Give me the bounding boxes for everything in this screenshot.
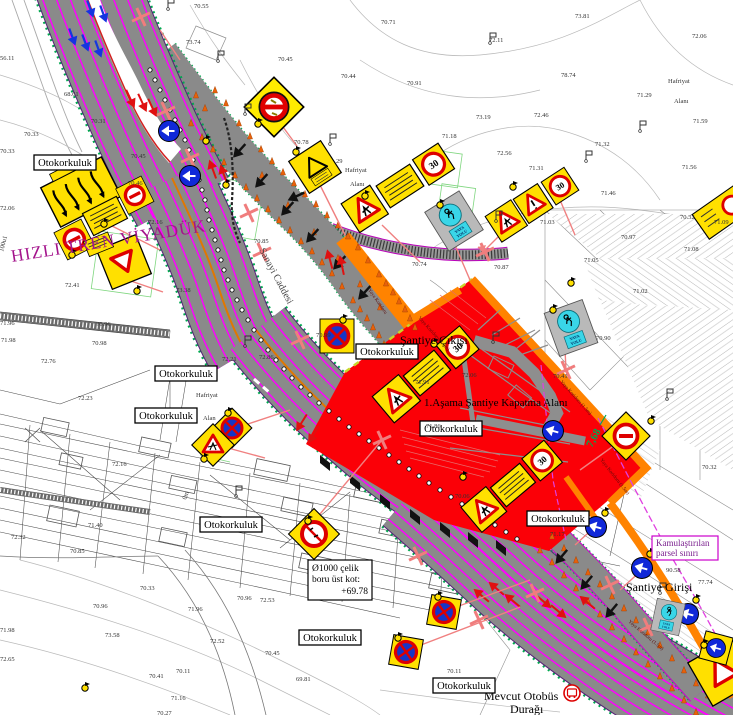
svg-text:+69.78: +69.78	[341, 587, 368, 597]
svg-text:71.86: 71.86	[426, 423, 441, 430]
svg-text:70.87: 70.87	[494, 264, 509, 271]
svg-text:70.32: 70.32	[680, 214, 695, 221]
svg-text:73.81: 73.81	[575, 13, 590, 20]
svg-text:71.17: 71.17	[550, 531, 565, 538]
svg-text:70.33: 70.33	[0, 148, 15, 155]
svg-text:72.16: 72.16	[148, 219, 163, 226]
svg-text:70.45: 70.45	[278, 56, 293, 63]
svg-text:70.90: 70.90	[596, 335, 611, 342]
svg-text:68.61: 68.61	[64, 91, 79, 98]
svg-text:Durağı: Durağı	[510, 702, 544, 715]
svg-text:73.38: 73.38	[176, 287, 191, 294]
svg-text:72.56: 72.56	[497, 150, 512, 157]
svg-text:parsel sınırı: parsel sınırı	[656, 548, 699, 558]
svg-text:Hafriyat: Hafriyat	[345, 167, 367, 174]
svg-text:71.91: 71.91	[415, 379, 430, 386]
svg-text:Hafriyat: Hafriyat	[196, 392, 218, 399]
svg-text:72.06: 72.06	[0, 205, 15, 212]
svg-text:boru üst kot:: boru üst kot:	[312, 575, 360, 585]
svg-text:72.32: 72.32	[11, 534, 26, 541]
svg-text:70.33: 70.33	[140, 585, 155, 592]
svg-text:71.02: 71.02	[633, 288, 648, 295]
svg-text:72.16: 72.16	[112, 461, 127, 468]
svg-text:70.11: 70.11	[447, 668, 461, 675]
svg-text:71.98: 71.98	[0, 627, 15, 634]
svg-text:70.99: 70.99	[316, 332, 331, 339]
svg-text:71.98: 71.98	[1, 337, 16, 344]
svg-text:71.56: 71.56	[682, 164, 697, 171]
svg-text:72.11: 72.11	[489, 37, 503, 44]
svg-text:70.41: 70.41	[553, 373, 568, 380]
svg-text:70.32: 70.32	[702, 464, 717, 471]
svg-text:Hafriyat: Hafriyat	[668, 78, 690, 85]
svg-text:Mevcut Otobüs: Mevcut Otobüs	[484, 689, 559, 703]
svg-text:71.31: 71.31	[529, 165, 544, 172]
svg-text:71.16: 71.16	[171, 695, 186, 702]
svg-text:71.09: 71.09	[714, 219, 729, 226]
svg-text:78.74: 78.74	[561, 72, 576, 79]
svg-text:71.96: 71.96	[188, 606, 203, 613]
svg-text:73.74: 73.74	[186, 39, 201, 46]
svg-text:72.06: 72.06	[462, 372, 477, 379]
svg-text:70.11: 70.11	[176, 668, 190, 675]
svg-text:72.06: 72.06	[692, 33, 707, 40]
svg-text:77.74: 77.74	[698, 579, 713, 586]
svg-text:70.71: 70.71	[381, 19, 396, 26]
svg-text:Kamulaştırılan: Kamulaştırılan	[656, 538, 710, 548]
svg-text:Alan: Alan	[203, 415, 216, 422]
svg-text:1.Aşama Şantiye Kapatma Alanı: 1.Aşama Şantiye Kapatma Alanı	[424, 397, 568, 409]
svg-text:70.41: 70.41	[149, 673, 164, 680]
svg-text:70.06: 70.06	[455, 493, 470, 500]
svg-text:Şantiye Girişi: Şantiye Girişi	[626, 580, 693, 594]
svg-text:72.21: 72.21	[222, 356, 237, 363]
svg-text:71.03: 71.03	[540, 219, 555, 226]
svg-text:71.08: 71.08	[684, 246, 699, 253]
svg-text:71.05: 71.05	[584, 257, 599, 264]
svg-text:90.58: 90.58	[666, 567, 681, 574]
svg-text:70.91: 70.91	[407, 80, 422, 87]
svg-text:70.96: 70.96	[96, 321, 111, 328]
svg-text:72.86: 72.86	[259, 354, 274, 361]
svg-text:73.19: 73.19	[476, 114, 491, 121]
svg-text:70.31: 70.31	[91, 118, 106, 125]
svg-text:70.97: 70.97	[621, 234, 636, 241]
svg-text:71.18: 71.18	[442, 133, 457, 140]
svg-text:70.74: 70.74	[412, 261, 427, 268]
svg-text:70.44: 70.44	[341, 73, 356, 80]
svg-text:Ø1000 çelik: Ø1000 çelik	[312, 564, 359, 574]
svg-text:70.96: 70.96	[237, 595, 252, 602]
svg-text:Alanı: Alanı	[674, 98, 689, 105]
svg-text:70.46: 70.46	[128, 180, 143, 187]
svg-text:72.23: 72.23	[78, 395, 93, 402]
svg-text:71.40: 71.40	[88, 522, 103, 529]
svg-text:29: 29	[336, 158, 343, 165]
svg-text:70.33: 70.33	[24, 131, 39, 138]
svg-text:70.78: 70.78	[294, 139, 309, 146]
svg-text:69.81: 69.81	[296, 676, 311, 683]
svg-text:70.45: 70.45	[131, 153, 146, 160]
svg-text:72.65: 72.65	[0, 656, 15, 663]
svg-text:56.11: 56.11	[0, 55, 14, 62]
svg-text:72.52: 72.52	[210, 638, 225, 645]
svg-text:70.45: 70.45	[265, 650, 280, 657]
svg-text:70.96: 70.96	[93, 603, 108, 610]
svg-text:70.85: 70.85	[70, 548, 85, 555]
svg-text:71.59: 71.59	[693, 118, 708, 125]
svg-text:72.76: 72.76	[41, 358, 56, 365]
svg-text:71.29: 71.29	[637, 92, 652, 99]
svg-text:70.98: 70.98	[92, 340, 107, 347]
svg-text:72.53: 72.53	[260, 597, 275, 604]
svg-text:70.27: 70.27	[157, 710, 172, 715]
svg-text:71.96: 71.96	[0, 320, 15, 327]
svg-text:71.46: 71.46	[601, 190, 616, 197]
svg-text:72.46: 72.46	[534, 112, 549, 119]
svg-text:70.55: 70.55	[194, 3, 209, 10]
svg-text:Alanı: Alanı	[350, 181, 365, 188]
svg-text:72.41: 72.41	[65, 282, 80, 289]
svg-text:70.85: 70.85	[254, 238, 269, 245]
svg-text:73.58: 73.58	[105, 632, 120, 639]
svg-text:71.32: 71.32	[595, 141, 610, 148]
